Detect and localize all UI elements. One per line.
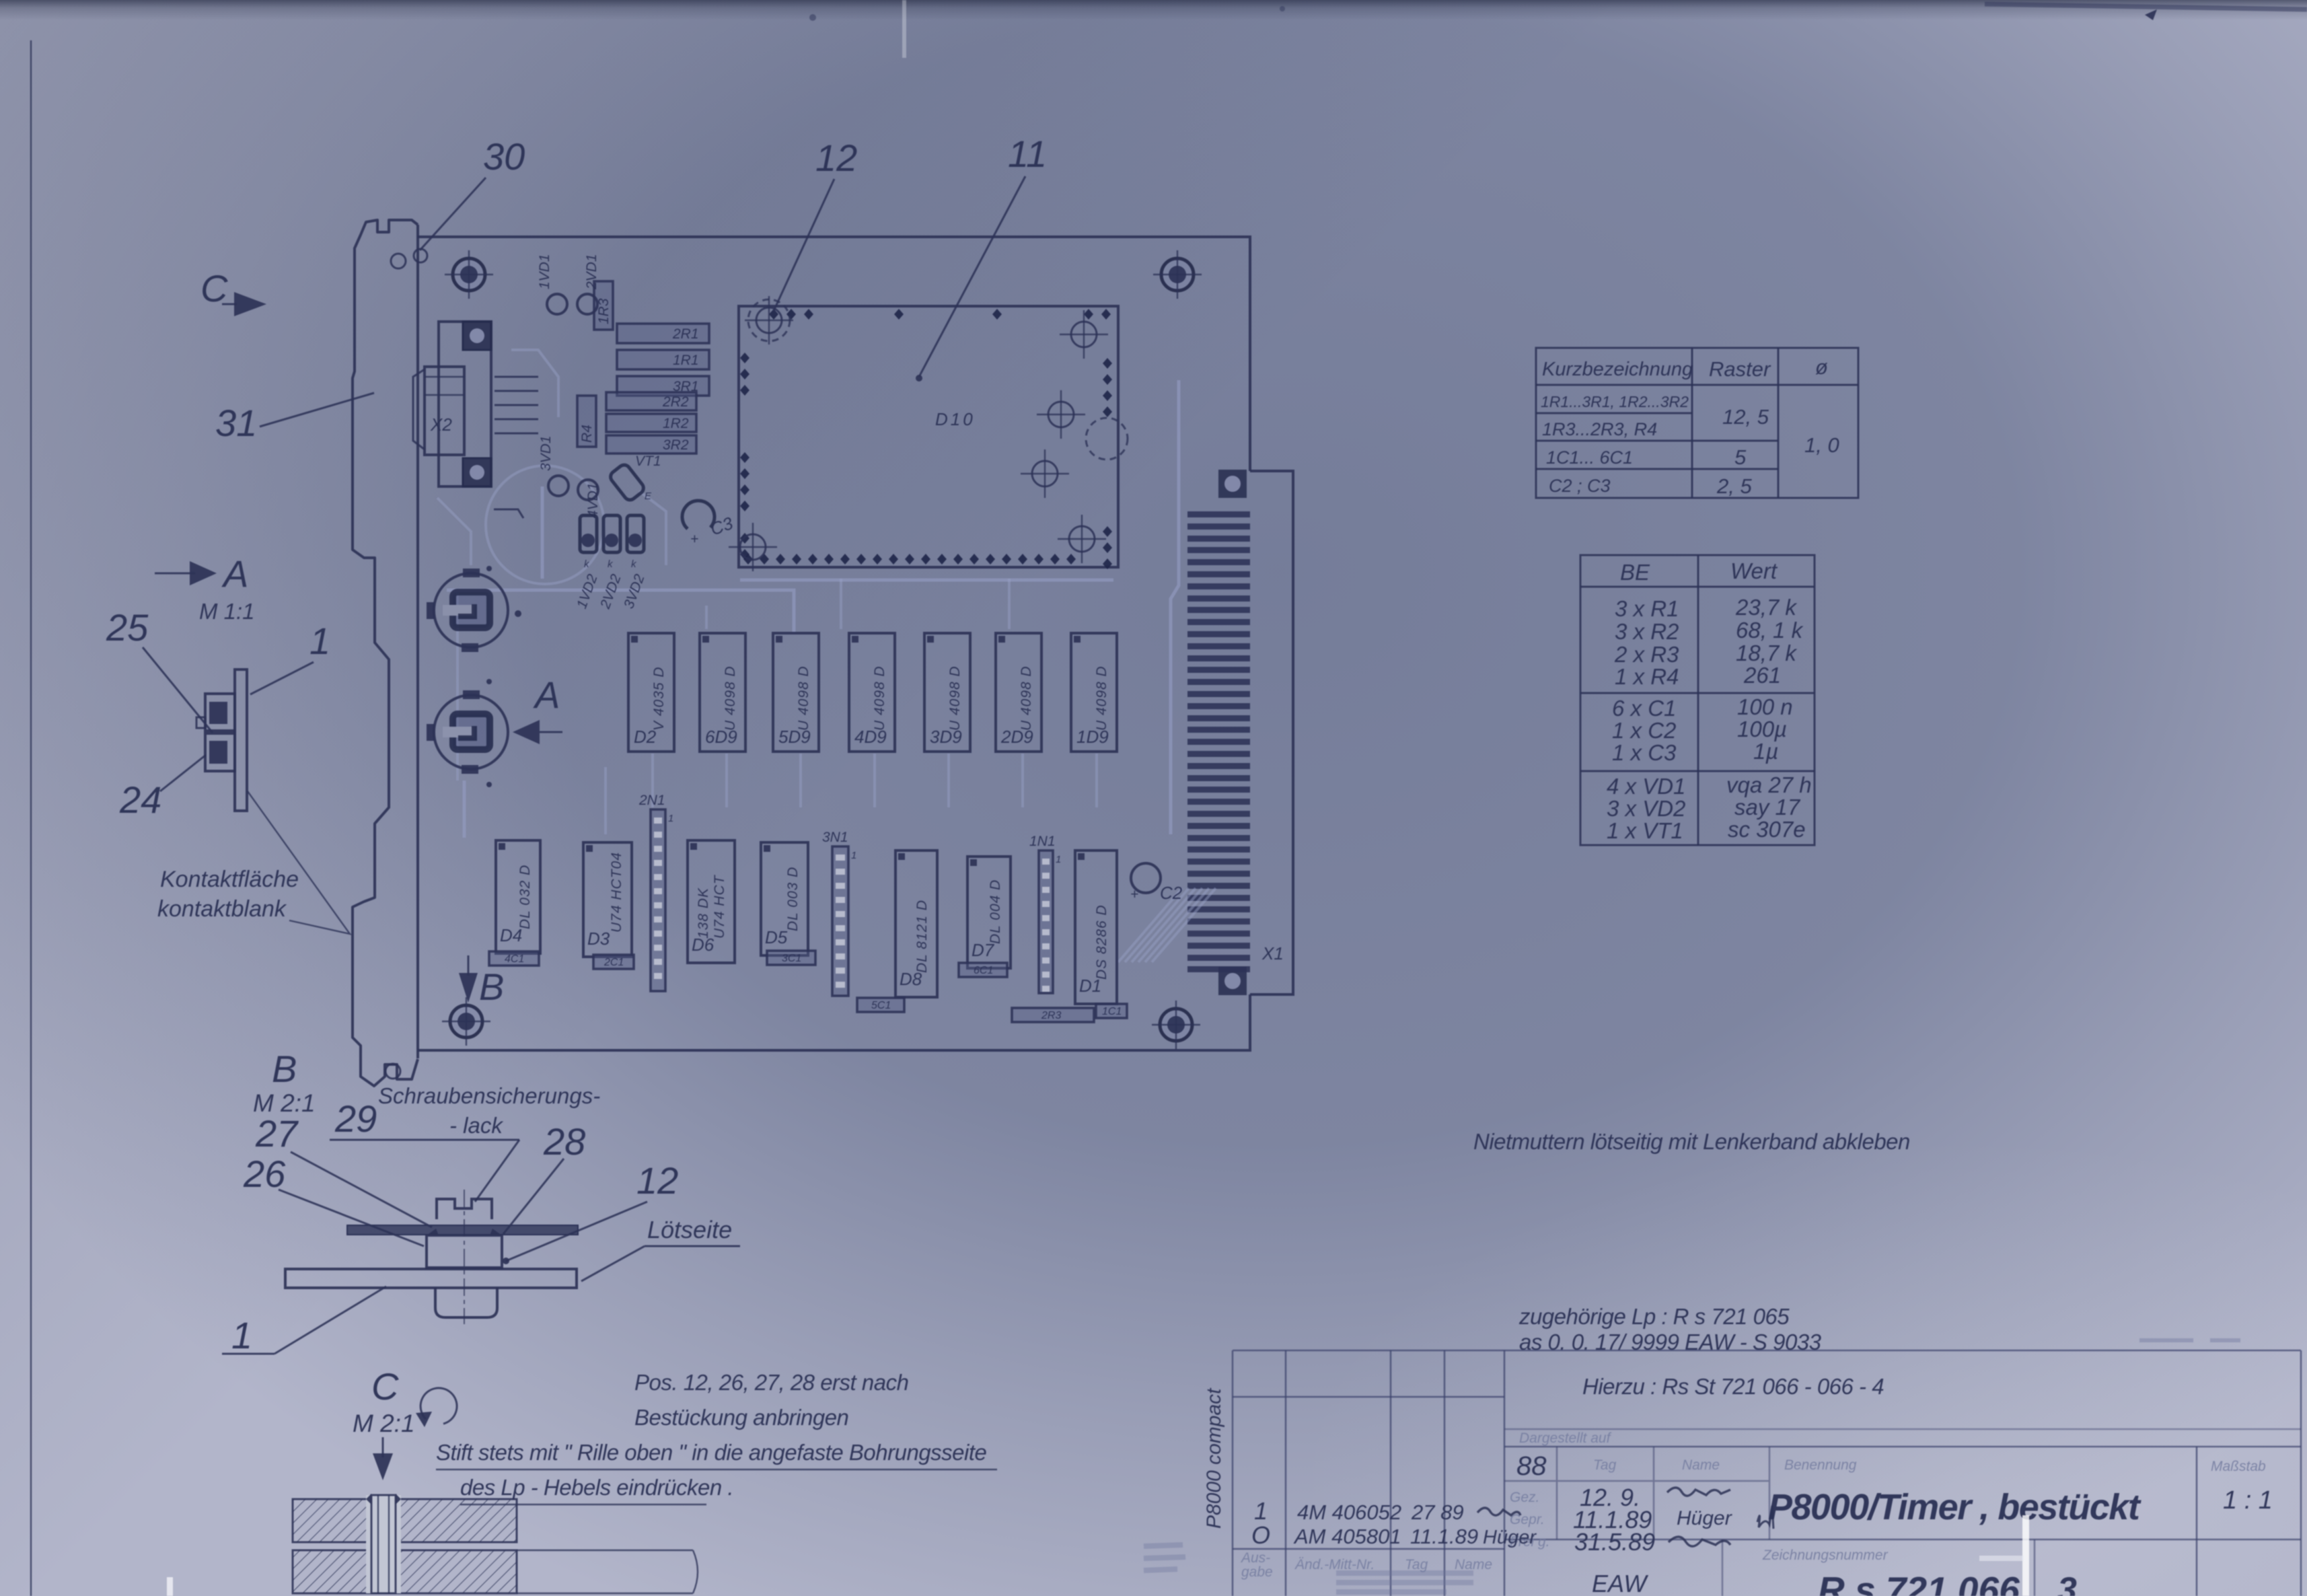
- svg-text:6 x C1: 6 x C1: [1612, 696, 1676, 721]
- svg-text:1 : 1: 1 : 1: [2223, 1486, 2273, 1515]
- svg-text:11.1.89: 11.1.89: [1410, 1525, 1478, 1548]
- svg-text:D10: D10: [935, 409, 976, 429]
- svg-text:ø: ø: [1815, 355, 1828, 379]
- svg-text:18,7 k: 18,7 k: [1736, 641, 1797, 665]
- svg-text:O: O: [1251, 1521, 1270, 1549]
- svg-text:1, 0: 1, 0: [1804, 433, 1839, 457]
- svg-text:D5: D5: [765, 927, 788, 947]
- svg-text:C2: C2: [1160, 883, 1183, 903]
- svg-text:BE: BE: [1620, 560, 1650, 585]
- svg-text:E: E: [645, 491, 652, 502]
- svg-text:1R1...3R1, 1R2...3R2: 1R1...3R1, 1R2...3R2: [1541, 393, 1689, 410]
- svg-text:1N1: 1N1: [1029, 834, 1056, 849]
- svg-text:Pos. 12, 26, 27, 28 erst nac: Pos. 12, 26, 27, 28 erst nach: [634, 1370, 908, 1395]
- svg-text:Tag: Tag: [1405, 1557, 1428, 1572]
- svg-text:2C1: 2C1: [603, 957, 624, 968]
- svg-text:1µ: 1µ: [1753, 739, 1778, 764]
- svg-text:D3: D3: [587, 929, 610, 949]
- svg-text:1: 1: [231, 1314, 252, 1356]
- svg-text:Zeichnungsnummer: Zeichnungsnummer: [1762, 1548, 1889, 1563]
- svg-text:say 17: say 17: [1734, 795, 1801, 820]
- svg-text:2, 5: 2, 5: [1716, 474, 1752, 498]
- svg-text:4 x VD1: 4 x VD1: [1607, 774, 1685, 799]
- svg-text:U 4098 D: U 4098 D: [872, 665, 887, 731]
- svg-text:Benennung: Benennung: [1784, 1457, 1857, 1473]
- svg-text:M 1:1: M 1:1: [199, 599, 255, 624]
- svg-text:D1: D1: [1079, 976, 1101, 996]
- svg-text:+: +: [1130, 887, 1138, 902]
- svg-text:2R1: 2R1: [672, 326, 699, 342]
- svg-text:23,7 k: 23,7 k: [1735, 595, 1797, 620]
- svg-text:5: 5: [1734, 445, 1747, 469]
- svg-text:P8000 compact: P8000 compact: [1203, 1387, 1225, 1529]
- svg-text:kontaktblank: kontaktblank: [157, 896, 287, 922]
- svg-text:30: 30: [483, 135, 525, 178]
- svg-text:1R1: 1R1: [673, 353, 699, 368]
- svg-text:5D9: 5D9: [778, 727, 811, 747]
- svg-text:1C1: 1C1: [1102, 1006, 1122, 1017]
- svg-text:DL 8121 D: DL 8121 D: [914, 900, 930, 973]
- svg-text:3 x R1: 3 x R1: [1615, 596, 1679, 621]
- svg-text:261: 261: [1743, 663, 1781, 688]
- svg-text:Hierzu : Rs St 721 066 -: Hierzu : Rs St 721 066 - 066 - 4: [1582, 1374, 1884, 1399]
- svg-text:12: 12: [815, 137, 857, 179]
- svg-text:1: 1: [1056, 854, 1061, 865]
- svg-text:3N1: 3N1: [822, 830, 848, 845]
- svg-text:11: 11: [1008, 133, 1047, 175]
- svg-text:1 x R4: 1 x R4: [1615, 664, 1679, 689]
- svg-text:27 89: 27 89: [1411, 1500, 1464, 1524]
- svg-text:26: 26: [243, 1153, 286, 1195]
- svg-text:+: +: [690, 532, 698, 547]
- svg-text:D8: D8: [900, 969, 922, 989]
- svg-text:Raster: Raster: [1709, 357, 1771, 381]
- svg-text:3C1: 3C1: [782, 953, 801, 964]
- svg-text:88: 88: [1516, 1451, 1547, 1481]
- svg-text:U 4098 D: U 4098 D: [1019, 665, 1034, 731]
- svg-text:D2: D2: [634, 727, 657, 747]
- svg-text:Stift stets mit " Rille o: Stift stets mit " Rille oben " in die an…: [436, 1440, 987, 1465]
- svg-text:- lack: - lack: [449, 1113, 503, 1138]
- svg-text:2D9: 2D9: [1000, 727, 1033, 747]
- svg-text:C3: C3: [708, 513, 736, 540]
- svg-text:2R3: 2R3: [1041, 1010, 1061, 1021]
- svg-text:k: k: [631, 558, 637, 570]
- svg-text:R4: R4: [579, 425, 595, 443]
- svg-text:des Lp - Hebels eindrücken: des Lp - Hebels eindrücken .: [460, 1475, 733, 1500]
- svg-text:Schraubensicherungs-: Schraubensicherungs-: [378, 1083, 600, 1108]
- svg-text:D7: D7: [972, 940, 995, 960]
- svg-text:Hüger: Hüger: [1677, 1507, 1732, 1529]
- svg-text:3D9: 3D9: [930, 727, 962, 747]
- svg-text:DL 032 D: DL 032 D: [517, 865, 533, 929]
- svg-text:6D9: 6D9: [705, 727, 737, 747]
- svg-text:Name: Name: [1455, 1557, 1492, 1572]
- svg-text:1: 1: [309, 620, 330, 662]
- svg-text:R s 721 066: R s 721 066: [1818, 1569, 2020, 1596]
- svg-text:Maßstab: Maßstab: [2211, 1459, 2266, 1474]
- svg-text:4VD1: 4VD1: [585, 482, 601, 518]
- svg-text:DS 8286 D: DS 8286 D: [1094, 904, 1109, 980]
- svg-text:Wert: Wert: [1730, 558, 1778, 583]
- svg-text:28: 28: [543, 1120, 585, 1163]
- svg-text:U74 HCT: U74 HCT: [712, 874, 727, 939]
- svg-text:U 4098 D: U 4098 D: [1094, 665, 1109, 731]
- svg-text:100 n: 100 n: [1737, 694, 1793, 719]
- svg-text:sc 307e: sc 307e: [1728, 817, 1806, 842]
- svg-text:EAW: EAW: [1592, 1570, 1648, 1596]
- svg-text:A: A: [533, 674, 560, 716]
- svg-text:4C1: 4C1: [505, 953, 524, 965]
- svg-text:12: 12: [636, 1159, 678, 1202]
- svg-text:1: 1: [668, 813, 673, 824]
- svg-text:gabe: gabe: [1241, 1564, 1273, 1580]
- svg-text:1VD1: 1VD1: [537, 254, 552, 289]
- svg-text:1 x C3: 1 x C3: [1612, 740, 1677, 765]
- svg-text:1 x C2: 1 x C2: [1612, 718, 1676, 743]
- svg-text:A: A: [221, 552, 248, 595]
- svg-text:3VD1: 3VD1: [538, 435, 554, 471]
- svg-text:3: 3: [2057, 1570, 2077, 1596]
- svg-text:29: 29: [334, 1097, 377, 1140]
- svg-text:5C1: 5C1: [871, 1000, 891, 1011]
- svg-text:1D9: 1D9: [1076, 727, 1109, 747]
- svg-text:P8000/Timer , bestückt: P8000/Timer , bestückt: [1768, 1487, 2141, 1527]
- svg-text:138 DK: 138 DK: [696, 887, 711, 939]
- svg-text:zugehörige Lp : R s 721 0: zugehörige Lp : R s 721 065: [1518, 1304, 1790, 1329]
- svg-text:V 4035 D: V 4035 D: [651, 666, 667, 731]
- svg-text:Tag: Tag: [1593, 1457, 1617, 1473]
- svg-text:31: 31: [215, 402, 257, 444]
- svg-text:B: B: [479, 966, 504, 1008]
- svg-text:M 2:1: M 2:1: [353, 1410, 415, 1437]
- svg-text:C: C: [371, 1365, 399, 1408]
- svg-text:C2 ; C3: C2 ; C3: [1549, 476, 1611, 496]
- svg-text:Gez.: Gez.: [1510, 1490, 1539, 1505]
- svg-text:12, 5: 12, 5: [1722, 405, 1769, 429]
- svg-text:3 x R2: 3 x R2: [1615, 619, 1679, 644]
- svg-text:25: 25: [106, 606, 149, 649]
- svg-text:3 x VD2: 3 x VD2: [1607, 796, 1685, 821]
- svg-text:Lötseite: Lötseite: [647, 1216, 732, 1243]
- svg-text:6C1: 6C1: [974, 965, 993, 976]
- svg-text:B: B: [272, 1048, 297, 1090]
- svg-text:VT1: VT1: [635, 454, 661, 469]
- svg-text:DL 004 D: DL 004 D: [988, 879, 1003, 944]
- svg-text:Nietmuttern lötseitig mit L: Nietmuttern lötseitig mit Lenkerband abk…: [1473, 1129, 1910, 1154]
- svg-text:2VD1: 2VD1: [584, 254, 599, 290]
- svg-text:Hüger: Hüger: [1483, 1527, 1537, 1548]
- svg-text:1R2: 1R2: [663, 416, 689, 431]
- svg-text:1C1... 6C1: 1C1... 6C1: [1546, 447, 1633, 468]
- svg-text:X1: X1: [1261, 943, 1284, 964]
- svg-text:U 4098 D: U 4098 D: [796, 665, 811, 731]
- svg-text:2 x R3: 2 x R3: [1614, 642, 1679, 667]
- svg-text:Aus-: Aus-: [1240, 1550, 1270, 1566]
- svg-text:U74 HCT04: U74 HCT04: [609, 852, 624, 933]
- svg-text:1R3...2R3, R4: 1R3...2R3, R4: [1542, 419, 1657, 439]
- svg-text:U 4098 D: U 4098 D: [947, 665, 963, 731]
- svg-text:Änd.-Mitt-Nr.: Änd.-Mitt-Nr.: [1294, 1557, 1375, 1572]
- svg-text:Kurzbezeichnung: Kurzbezeichnung: [1542, 359, 1693, 380]
- svg-text:D4: D4: [500, 925, 522, 945]
- svg-text:AM 405801: AM 405801: [1293, 1525, 1401, 1548]
- svg-text:vqa 27 h: vqa 27 h: [1726, 772, 1812, 797]
- svg-text:Dargestellt auf: Dargestellt auf: [1519, 1430, 1612, 1446]
- svg-text:68, 1 k: 68, 1 k: [1736, 618, 1804, 643]
- svg-text:D6: D6: [692, 935, 715, 955]
- svg-text:4M 406052: 4M 406052: [1297, 1500, 1401, 1524]
- svg-text:1: 1: [1254, 1497, 1268, 1525]
- svg-text:Name: Name: [1682, 1457, 1720, 1473]
- svg-text:3R2: 3R2: [663, 437, 689, 453]
- svg-text:2N1: 2N1: [638, 793, 665, 808]
- svg-text:4D9: 4D9: [854, 727, 887, 747]
- svg-text:U 4098 D: U 4098 D: [723, 665, 738, 731]
- svg-text:1: 1: [851, 850, 856, 861]
- svg-text:DL 003 D: DL 003 D: [785, 867, 801, 931]
- svg-text:Bestückung anbringen: Bestückung anbringen: [634, 1405, 848, 1430]
- svg-text:31.5.89: 31.5.89: [1574, 1528, 1655, 1556]
- svg-text:27: 27: [255, 1112, 299, 1155]
- svg-text:1 x VT1: 1 x VT1: [1607, 818, 1683, 843]
- svg-text:Gepr.: Gepr.: [1510, 1512, 1545, 1527]
- svg-text:24: 24: [119, 778, 161, 821]
- svg-text:X2: X2: [430, 414, 452, 435]
- svg-text:100µ: 100µ: [1737, 717, 1787, 741]
- svg-text:Kontaktfläche: Kontaktfläche: [160, 867, 299, 892]
- svg-text:k: k: [608, 558, 614, 570]
- svg-text:2R2: 2R2: [662, 394, 689, 410]
